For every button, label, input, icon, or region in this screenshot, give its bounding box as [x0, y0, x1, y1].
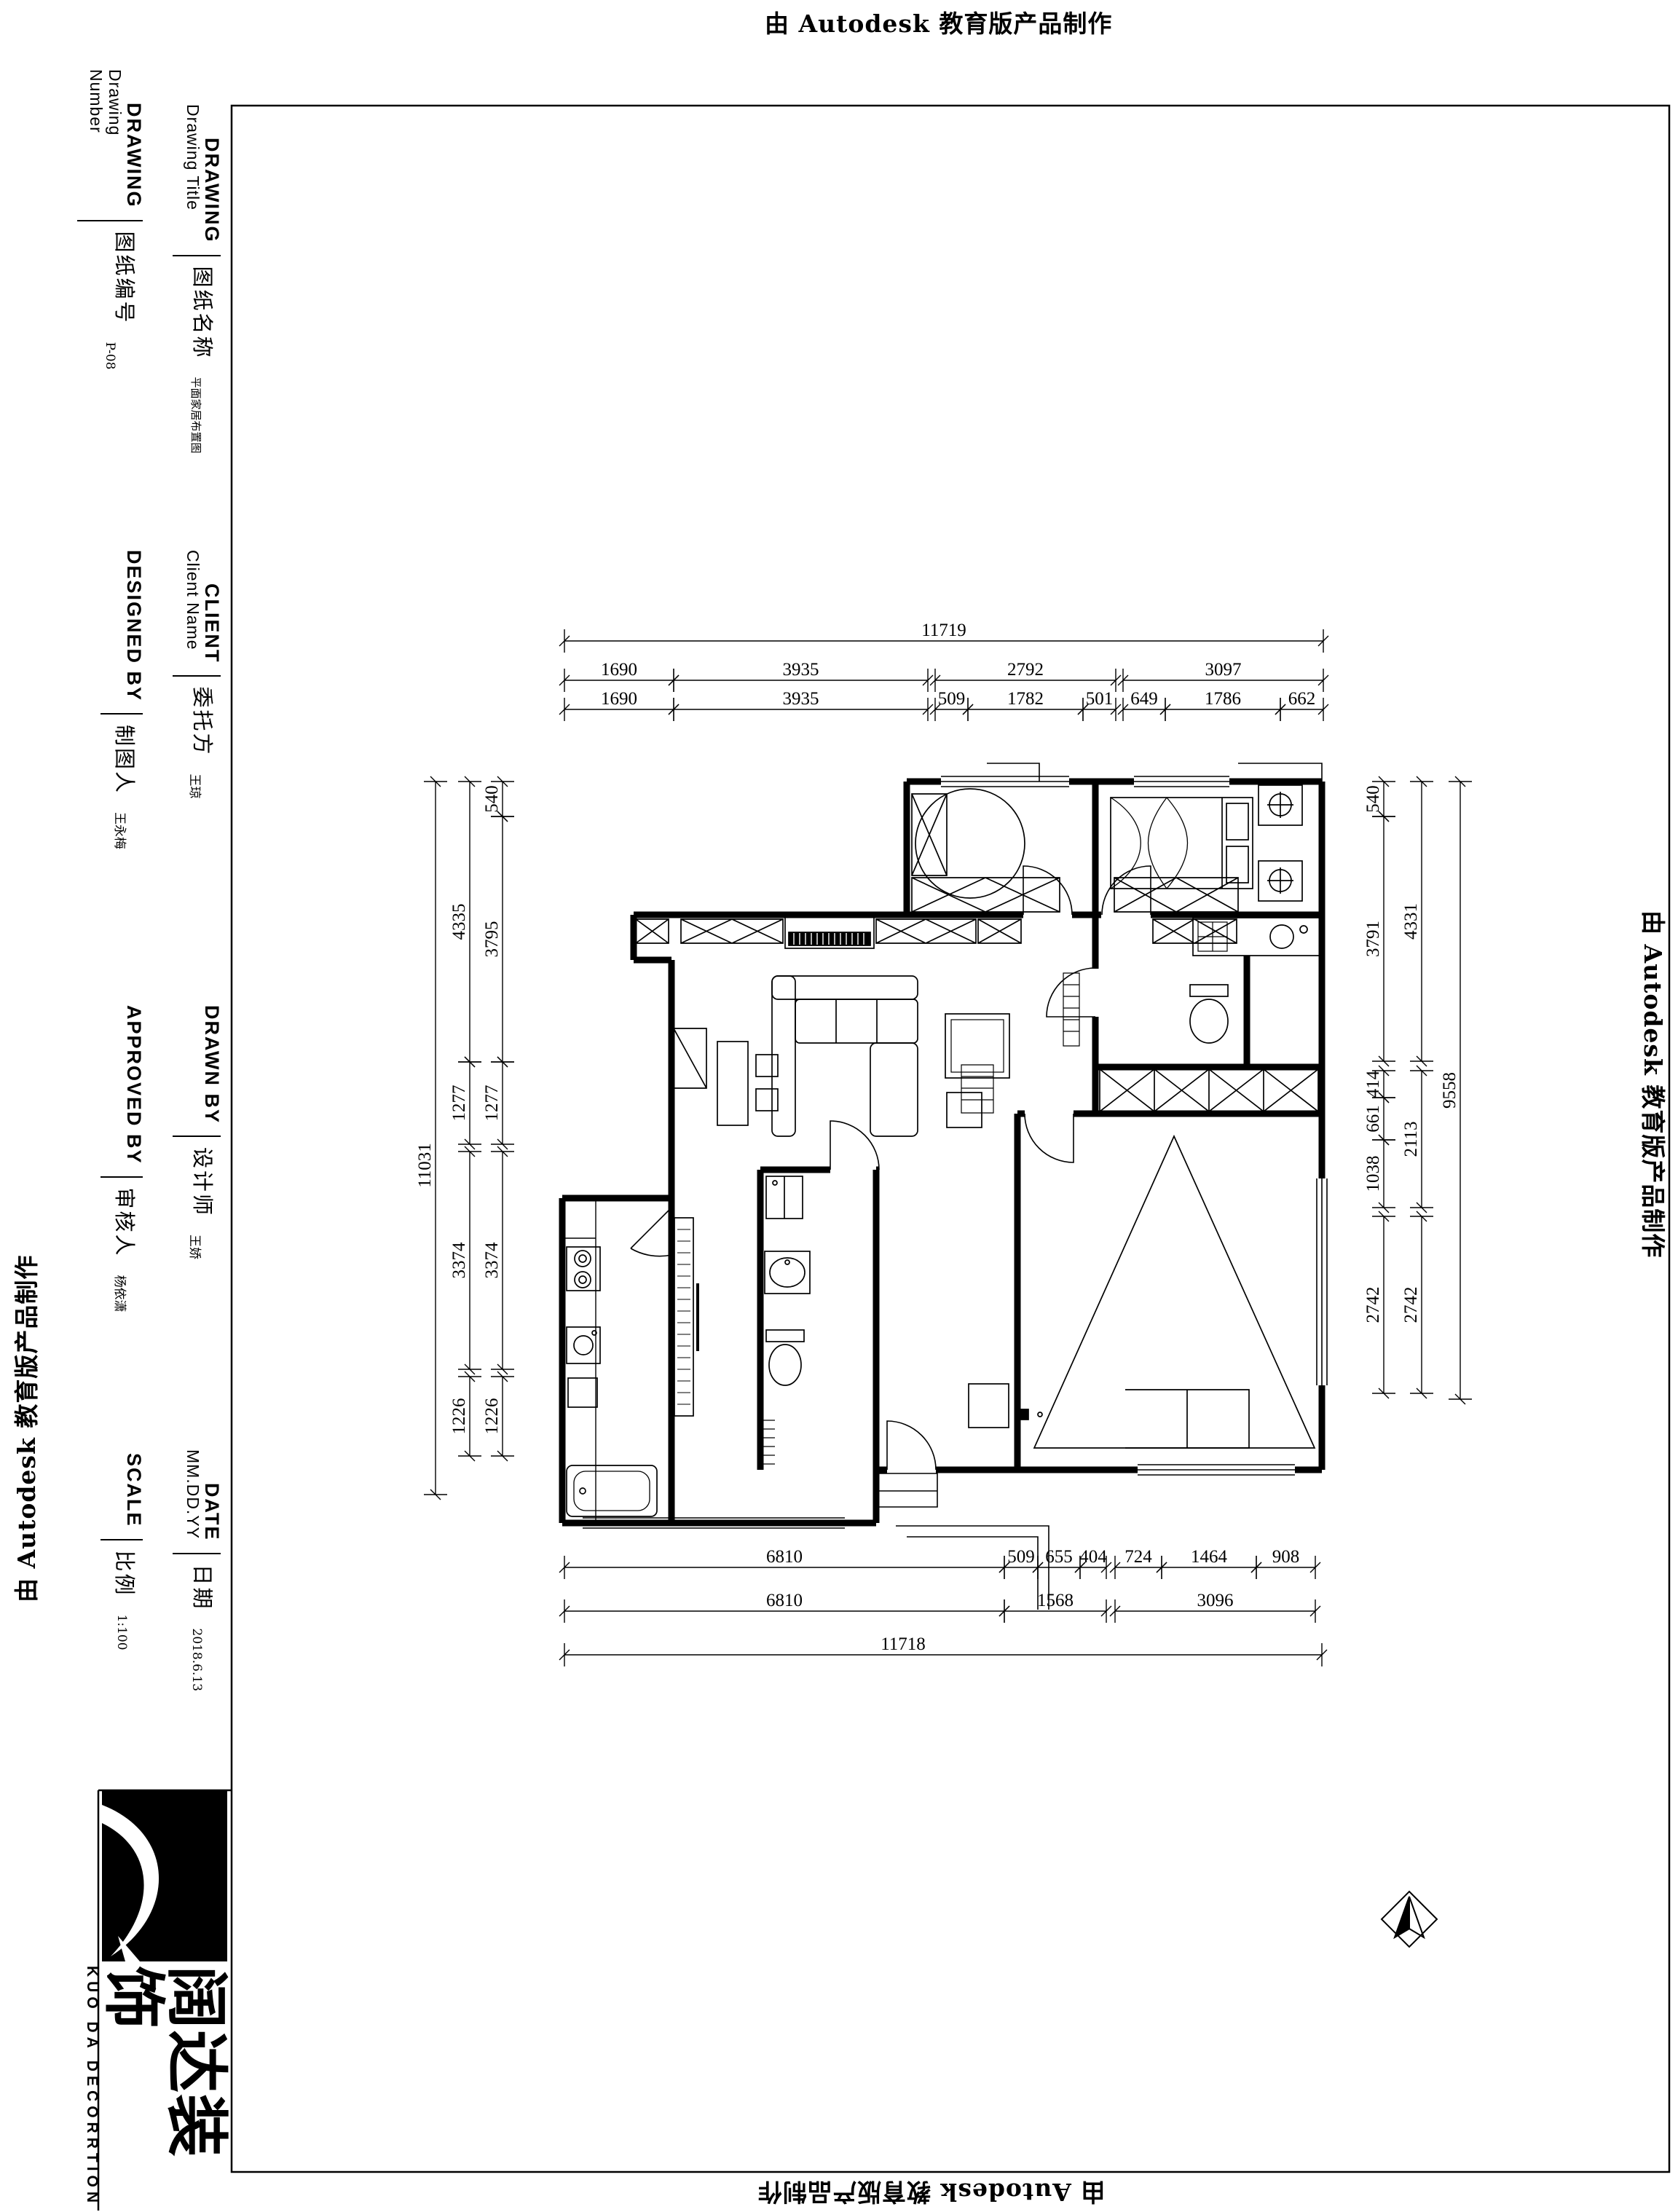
- dim-label: 1226: [449, 1398, 469, 1435]
- round-table-icon: [915, 789, 1025, 898]
- dim-label: 1690: [601, 660, 637, 680]
- block-title: DESIGNED BY: [124, 550, 144, 701]
- dim-label: 3374: [449, 1242, 469, 1279]
- piano-icon: [785, 916, 874, 948]
- titleblock-approved-by: APPROVED BY 审核人 杨依潇: [99, 1005, 144, 1329]
- doors: [631, 866, 1151, 1470]
- block-label-cn: 图纸名称: [182, 267, 222, 360]
- toilet-icon: [1190, 985, 1228, 1043]
- block-label-cn: 审核人: [104, 1188, 144, 1258]
- divider: [101, 1539, 143, 1540]
- dim-label: 2792: [1007, 660, 1044, 680]
- block-label-cn: 委托方: [182, 687, 222, 757]
- dim-label: 1568: [1037, 1591, 1074, 1610]
- dim-label: 1226: [482, 1398, 502, 1435]
- canopy-bed-icon: [1034, 1136, 1315, 1448]
- dim-label: 655: [1045, 1547, 1073, 1567]
- scale-value: 1:100: [114, 1615, 129, 1650]
- dim-label: 3791: [1363, 921, 1383, 957]
- dining-table-icon: [717, 1042, 778, 1125]
- hall-cabinet-icon: [1063, 973, 1079, 1046]
- prep-table-icon: [568, 1378, 597, 1407]
- coffee-table-icon: [945, 1014, 1009, 1127]
- block-title: CLIENT: [202, 583, 222, 664]
- wash-basin-icon: [765, 1251, 810, 1294]
- side-table-icon: [969, 1384, 1009, 1428]
- block-subtitle: Drawing Number: [87, 69, 124, 208]
- divider: [173, 1553, 221, 1554]
- walls: [562, 782, 1322, 1523]
- logo-mark-icon: [102, 1790, 227, 1961]
- drawing-sheet: 由 Autodesk 教育版产品制作 由 Autodesk 教育版产品制作 由 …: [0, 0, 1678, 2212]
- dim-label: 3097: [1205, 660, 1242, 680]
- window-icon: [583, 1518, 845, 1528]
- titleblock-date: DATE MM.DD.YY 日期 2018.6.13: [171, 1449, 222, 1730]
- dim-label: 3096: [1197, 1591, 1234, 1610]
- door-arc: [887, 1421, 936, 1470]
- dim-label: 6810: [766, 1547, 803, 1567]
- dim-label: 649: [1130, 689, 1158, 709]
- date-value: 2018.6.13: [189, 1629, 204, 1692]
- dim-label: 1782: [1007, 689, 1044, 709]
- dim-label: 11718: [881, 1634, 926, 1654]
- block-title: SCALE: [124, 1453, 144, 1527]
- client-name-value: 王琼: [188, 774, 206, 799]
- dim-label: 540: [482, 785, 502, 813]
- dim-label: 501: [1086, 689, 1114, 709]
- divider: [173, 675, 221, 677]
- dim-label: 908: [1272, 1547, 1300, 1567]
- washing-machine-icon: [766, 1176, 803, 1219]
- shower-drain-icon: [763, 1420, 775, 1464]
- floor-drain: [1018, 1409, 1042, 1420]
- divider: [173, 1135, 221, 1137]
- block-subtitle: Drawing Title: [183, 104, 201, 243]
- dim-label: 1786: [1205, 689, 1241, 709]
- sheet-border: [98, 106, 1669, 2211]
- tv-cabinet-icon: [674, 1218, 698, 1416]
- sofa-icon: [772, 976, 918, 1136]
- titleblock-drawn-by: DRAWN BY 设计师 王娇: [171, 1005, 222, 1278]
- dim-label: 11031: [415, 1143, 435, 1188]
- door-leaf: [631, 1208, 671, 1256]
- floor-plan-canvas: 1171916903935279230971690393550917825016…: [0, 0, 1678, 2212]
- approved-by-value: 杨依潇: [113, 1275, 131, 1312]
- dim-label: 9558: [1440, 1072, 1460, 1109]
- dim-label: 2113: [1401, 1121, 1421, 1157]
- block-label-cn: 制图人: [104, 725, 144, 795]
- dim-label: 662: [1288, 689, 1316, 709]
- north-indicator-icon: [1382, 1892, 1437, 1947]
- dim-label: 509: [1007, 1547, 1035, 1567]
- block-label-cn: 日期: [182, 1564, 222, 1611]
- divider: [173, 255, 221, 256]
- divider: [77, 220, 143, 221]
- dim-label: 3935: [783, 689, 819, 709]
- window-seat-cabinets: [636, 919, 1237, 943]
- block-subtitle: MM.DD.YY: [183, 1449, 201, 1541]
- block-title: DRAWING: [202, 138, 222, 243]
- divider: [101, 713, 143, 715]
- dimension-chains: 1171916903935279230971690393550917825016…: [415, 621, 1472, 1666]
- window-icon: [1138, 1465, 1295, 1475]
- drawing-title-value: 平面家居布置图: [189, 377, 205, 454]
- kitchen-sink-icon: [567, 1327, 600, 1363]
- stove-icon: [567, 1247, 600, 1291]
- drawn-by-value: 王娇: [188, 1235, 206, 1259]
- dim-label: 1690: [601, 689, 637, 709]
- dim-label: 724: [1124, 1547, 1152, 1567]
- dim-label: 3795: [482, 921, 502, 958]
- door-arc: [1025, 1114, 1074, 1162]
- dim-label: 661: [1363, 1105, 1383, 1133]
- block-label-cn: 设计师: [182, 1147, 222, 1217]
- window-icon: [941, 776, 1069, 787]
- dim-label: 2742: [1401, 1287, 1421, 1323]
- dim-label: 509: [938, 689, 966, 709]
- window-icon: [1317, 1178, 1327, 1385]
- block-title: DATE: [202, 1483, 222, 1541]
- titleblock-drawing-title: DRAWING Drawing Title 图纸名称 平面家居布置图: [171, 104, 222, 410]
- drawing-number-value: P-08: [103, 342, 117, 370]
- dim-label: 404: [1079, 1547, 1107, 1567]
- dim-label: 3935: [783, 660, 819, 680]
- toilet-icon: [766, 1330, 804, 1385]
- logo-en-text: KUO DA DECORRTION: [83, 1966, 101, 2211]
- dim-label: 6810: [766, 1591, 803, 1610]
- dim-label: 4335: [449, 904, 469, 940]
- block-subtitle: Client Name: [183, 550, 201, 664]
- block-label-cn: 比例: [104, 1551, 144, 1597]
- dim-label: 4331: [1401, 903, 1421, 940]
- bathroom2-sink-icon: [1193, 918, 1322, 956]
- entry-steps: [878, 1473, 1049, 1610]
- door-arc: [1047, 968, 1095, 1017]
- block-title: APPROVED BY: [124, 1005, 144, 1165]
- dim-label: 1277: [449, 1085, 469, 1122]
- dim-label: 540: [1363, 785, 1383, 813]
- titleblock-client: CLIENT Client Name 委托方 王琼: [171, 550, 222, 841]
- wardrobe-icon: [1114, 878, 1238, 912]
- dim-label: 11719: [921, 621, 966, 640]
- wardrobe-icon: [1100, 1069, 1318, 1111]
- wardrobe-icon: [912, 794, 1060, 912]
- titleblock-scale: SCALE 比例 1:100: [99, 1453, 144, 1686]
- company-logo: 阔达装饰 KUO DA DECORRTION: [102, 1790, 227, 2211]
- block-title: DRAWING: [124, 103, 144, 208]
- divider: [101, 1176, 143, 1178]
- refrigerator-icon: [674, 1028, 706, 1088]
- dim-label: 1038: [1363, 1156, 1383, 1192]
- double-bed-icon: [1111, 798, 1253, 889]
- logo-cn-text: 阔达装饰: [102, 1966, 227, 2211]
- window-icon: [1134, 776, 1229, 787]
- designed-by-value: 王永梅: [113, 812, 131, 849]
- block-title: DRAWN BY: [202, 1005, 222, 1124]
- door-arc: [830, 1121, 879, 1170]
- nightstand-icon: [1258, 785, 1302, 901]
- dim-label: 1464: [1191, 1547, 1228, 1567]
- block-label-cn: 图纸编号: [104, 232, 144, 325]
- door-arc: [1102, 866, 1151, 915]
- pillow: [1226, 803, 1248, 840]
- dim-label: 2742: [1363, 1287, 1383, 1323]
- titleblock-drawing-number: DRAWING Drawing Number 图纸编号 P-08: [76, 69, 144, 359]
- titleblock-designed-by: DESIGNED BY 制图人 王永梅: [99, 550, 144, 852]
- dim-label: 1277: [482, 1085, 502, 1122]
- dim-label: 3374: [482, 1242, 502, 1279]
- bathtub-icon: [567, 1465, 657, 1516]
